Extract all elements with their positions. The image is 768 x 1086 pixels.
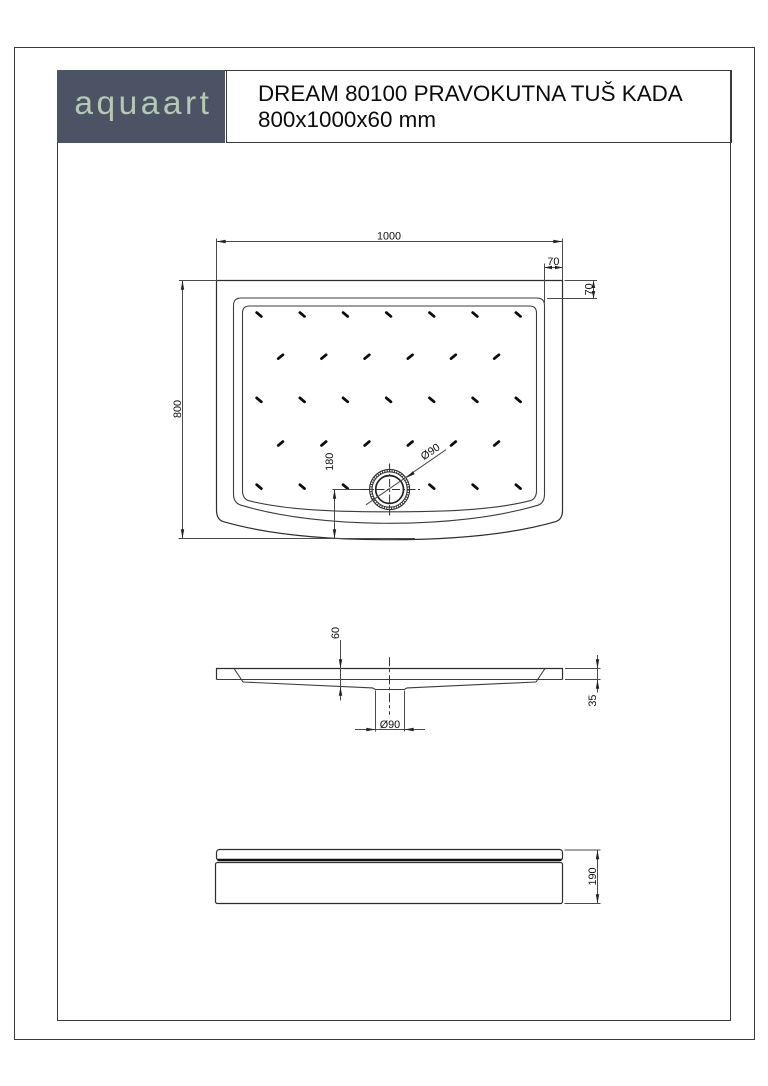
svg-text:70: 70: [547, 256, 559, 268]
svg-text:1000: 1000: [377, 230, 401, 242]
svg-text:180: 180: [324, 453, 336, 471]
svg-text:Ø90: Ø90: [380, 719, 400, 731]
svg-text:35: 35: [587, 695, 599, 707]
svg-text:190: 190: [587, 867, 599, 885]
svg-text:Ø90: Ø90: [419, 441, 443, 462]
svg-text:800: 800: [172, 400, 184, 418]
svg-text:60: 60: [330, 627, 342, 639]
svg-text:70: 70: [583, 283, 595, 295]
